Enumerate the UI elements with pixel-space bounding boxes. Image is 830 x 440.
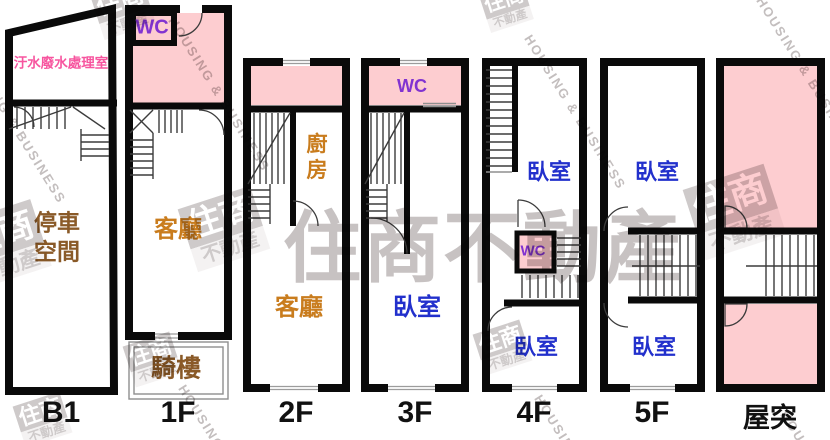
floor-label-3f: 3F xyxy=(370,396,460,430)
room-label-bedroom-5f-b: 臥室 xyxy=(632,333,676,361)
brand-logo-watermark: 住商 不動產 xyxy=(479,0,534,33)
floor-label-4f: 4F xyxy=(489,396,579,430)
room-label-sewage: 汙水廢水處理室 xyxy=(14,56,109,73)
room-label-parking: 停車 空間 xyxy=(34,208,80,266)
room-label-living-1f: 客廳 xyxy=(154,215,202,245)
room-label-wc-1f: WC xyxy=(135,16,168,41)
room-label-wc-4f: WC xyxy=(521,243,546,262)
floorplan-image: 汙水廢水處理室 停車 空間 WC 客廳 騎樓 廚 房 客廳 WC 臥室 臥室 W… xyxy=(0,0,830,440)
room-label-bedroom-4f-b: 臥室 xyxy=(514,333,558,361)
floorplan-2f-drawing xyxy=(243,58,350,398)
room-label-living-2f: 客廳 xyxy=(275,293,323,323)
room-label-kitchen: 廚 房 xyxy=(307,132,328,185)
floor-label-b1: B1 xyxy=(16,396,106,430)
floorplan-3f-drawing xyxy=(361,58,469,398)
room-label-bedroom-3f: 臥室 xyxy=(393,293,441,323)
floorplan-1f-drawing xyxy=(125,5,232,403)
room-label-bedroom-5f-a: 臥室 xyxy=(635,158,679,186)
rooftop-room-lower xyxy=(724,304,817,384)
floor-label-rooftop: 屋突 xyxy=(725,396,815,435)
floor-label-1f: 1F xyxy=(133,396,223,430)
room-label-bedroom-4f-a: 臥室 xyxy=(527,158,571,186)
floor-label-2f: 2F xyxy=(251,396,341,430)
rooftop-room-upper xyxy=(724,66,817,228)
bathroom-area xyxy=(251,66,342,105)
room-label-wc-3f: WC xyxy=(397,75,427,98)
floor-label-5f: 5F xyxy=(607,396,697,430)
floorplan-rooftop-drawing xyxy=(716,58,825,394)
room-label-arcade: 騎樓 xyxy=(151,353,201,384)
